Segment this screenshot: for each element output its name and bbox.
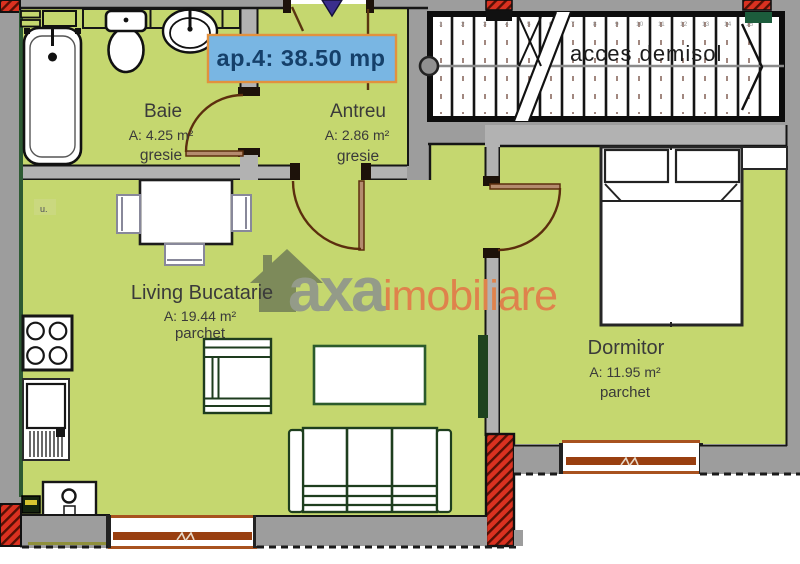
svg-text:A: 19.44 m²: A: 19.44 m² (164, 308, 237, 324)
svg-text:gresie: gresie (140, 147, 182, 164)
svg-text:u.: u. (40, 204, 48, 214)
svg-text:Living Bucatarie: Living Bucatarie (131, 282, 273, 304)
svg-text:A: 4.25 m²: A: 4.25 m² (129, 127, 194, 143)
svg-text:parchet: parchet (600, 384, 651, 401)
svg-text:ap.4: 38.50 mp: ap.4: 38.50 mp (217, 45, 386, 71)
svg-text:acces demisol: acces demisol (570, 41, 722, 66)
svg-text:2: 2 (461, 21, 465, 28)
svg-text:3: 3 (483, 21, 487, 28)
svg-text:9: 9 (615, 21, 619, 28)
svg-text:1: 1 (439, 21, 443, 28)
svg-text:5: 5 (527, 21, 531, 28)
svg-text:Antreu: Antreu (330, 101, 386, 122)
svg-text:14: 14 (724, 21, 732, 28)
svg-text:imobiliare: imobiliare (383, 272, 557, 320)
svg-text:4: 4 (505, 21, 509, 28)
svg-text:A: 2.86 m²: A: 2.86 m² (325, 127, 390, 143)
svg-text:7: 7 (571, 21, 575, 28)
svg-text:A: 11.95 m²: A: 11.95 m² (589, 364, 661, 380)
svg-text:12: 12 (680, 21, 688, 28)
svg-text:8: 8 (593, 21, 597, 28)
svg-text:axa: axa (288, 256, 386, 325)
svg-text:11: 11 (658, 21, 665, 28)
svg-text:Baie: Baie (144, 101, 182, 122)
svg-text:13: 13 (702, 21, 710, 28)
svg-text:Dormitor: Dormitor (588, 337, 665, 359)
svg-text:10: 10 (636, 21, 644, 28)
svg-text:gresie: gresie (337, 148, 379, 165)
svg-text:parchet: parchet (175, 325, 226, 342)
